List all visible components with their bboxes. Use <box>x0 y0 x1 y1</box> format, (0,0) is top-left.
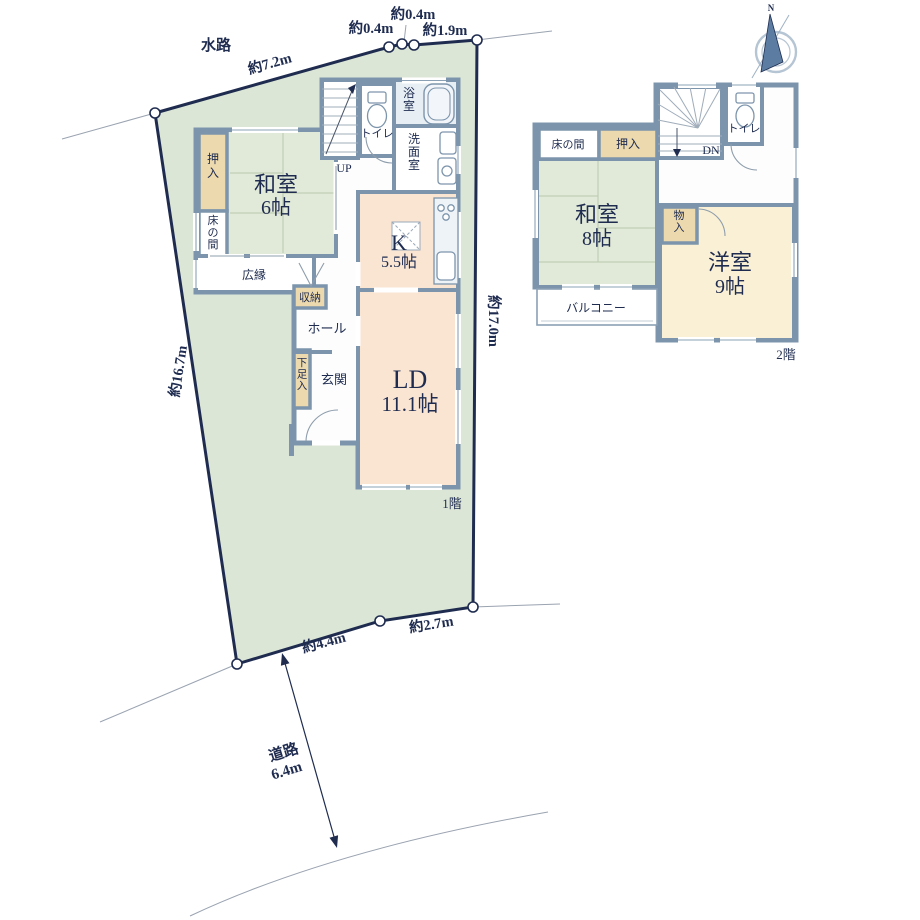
label-monoire: 物入 <box>674 208 685 234</box>
north-compass-icon: N <box>752 3 796 78</box>
label-shuno: 収納 <box>299 291 321 304</box>
washbasin-icon <box>438 132 456 184</box>
label-hiroen: 広縁 <box>242 267 266 282</box>
dim-left: 約16.7m <box>165 344 191 398</box>
label-tokonoma-2f: 床の間 <box>552 137 585 151</box>
toilet-icon-2f <box>736 93 754 127</box>
label-toilet-2f: トイレ <box>728 123 761 135</box>
label-bath: 浴室 <box>403 86 415 113</box>
dim-top-a: 約0.4m <box>349 19 394 37</box>
label-senmen: 洗面室 <box>408 132 420 172</box>
dim-top-c: 約1.9m <box>423 21 468 39</box>
label-kitchen-size: 5.5帖 <box>381 253 417 271</box>
label-washitsu8-name: 和室 <box>575 202 619 227</box>
north-letter: N <box>768 3 775 13</box>
label-oshiire-2f: 押入 <box>616 137 640 151</box>
floor2-plan: 床の間 押入 DN トイレ 和室 8帖 物入 洋室 9帖 バルコニー 2階 <box>532 82 799 362</box>
label-dn: DN <box>702 143 720 157</box>
label-genkan: 玄関 <box>321 372 347 387</box>
label-kitchen-name: K <box>391 230 407 255</box>
label-ld-name: LD <box>393 365 428 394</box>
dim-right: 約17.0m <box>485 295 503 347</box>
waterway-label: 水路 <box>201 36 232 54</box>
label-tokonoma-1f: 床の間 <box>208 213 219 251</box>
label-youshitsu-size: 9帖 <box>715 275 745 298</box>
label-oshiire-1f: 押入 <box>207 152 219 180</box>
label-washitsu8-size: 8帖 <box>582 227 612 250</box>
dim-top-b: 約0.4m <box>391 5 436 23</box>
label-washitsu6-name: 和室 <box>254 172 298 197</box>
road-edge-curve <box>190 812 548 916</box>
label-toilet-1f: トイレ <box>361 128 394 140</box>
sink-icon <box>437 252 455 280</box>
label-getabako: 下足入 <box>297 358 308 392</box>
label-balcony: バルコニー <box>566 301 626 315</box>
label-ld-size: 11.1帖 <box>382 392 439 416</box>
label-washitsu6-size: 6帖 <box>261 196 291 219</box>
dim-top: 約7.2m <box>246 48 294 77</box>
label-hall: ホール <box>307 321 346 336</box>
toilet-icon-1f <box>368 92 387 128</box>
bathtub-icon <box>424 84 454 124</box>
kitchen-counter <box>434 198 458 284</box>
label-youshitsu-name: 洋室 <box>708 250 752 275</box>
label-up: UP <box>336 161 352 175</box>
porch-wall-stub <box>289 424 294 456</box>
label-floor2: 2階 <box>776 347 796 362</box>
floor-plan-canvas: 水路 約7.2m 約0.4m 約0.4m 約1.9m 約17.0m 約16.7m… <box>0 0 920 920</box>
label-floor1: 1階 <box>442 496 462 511</box>
